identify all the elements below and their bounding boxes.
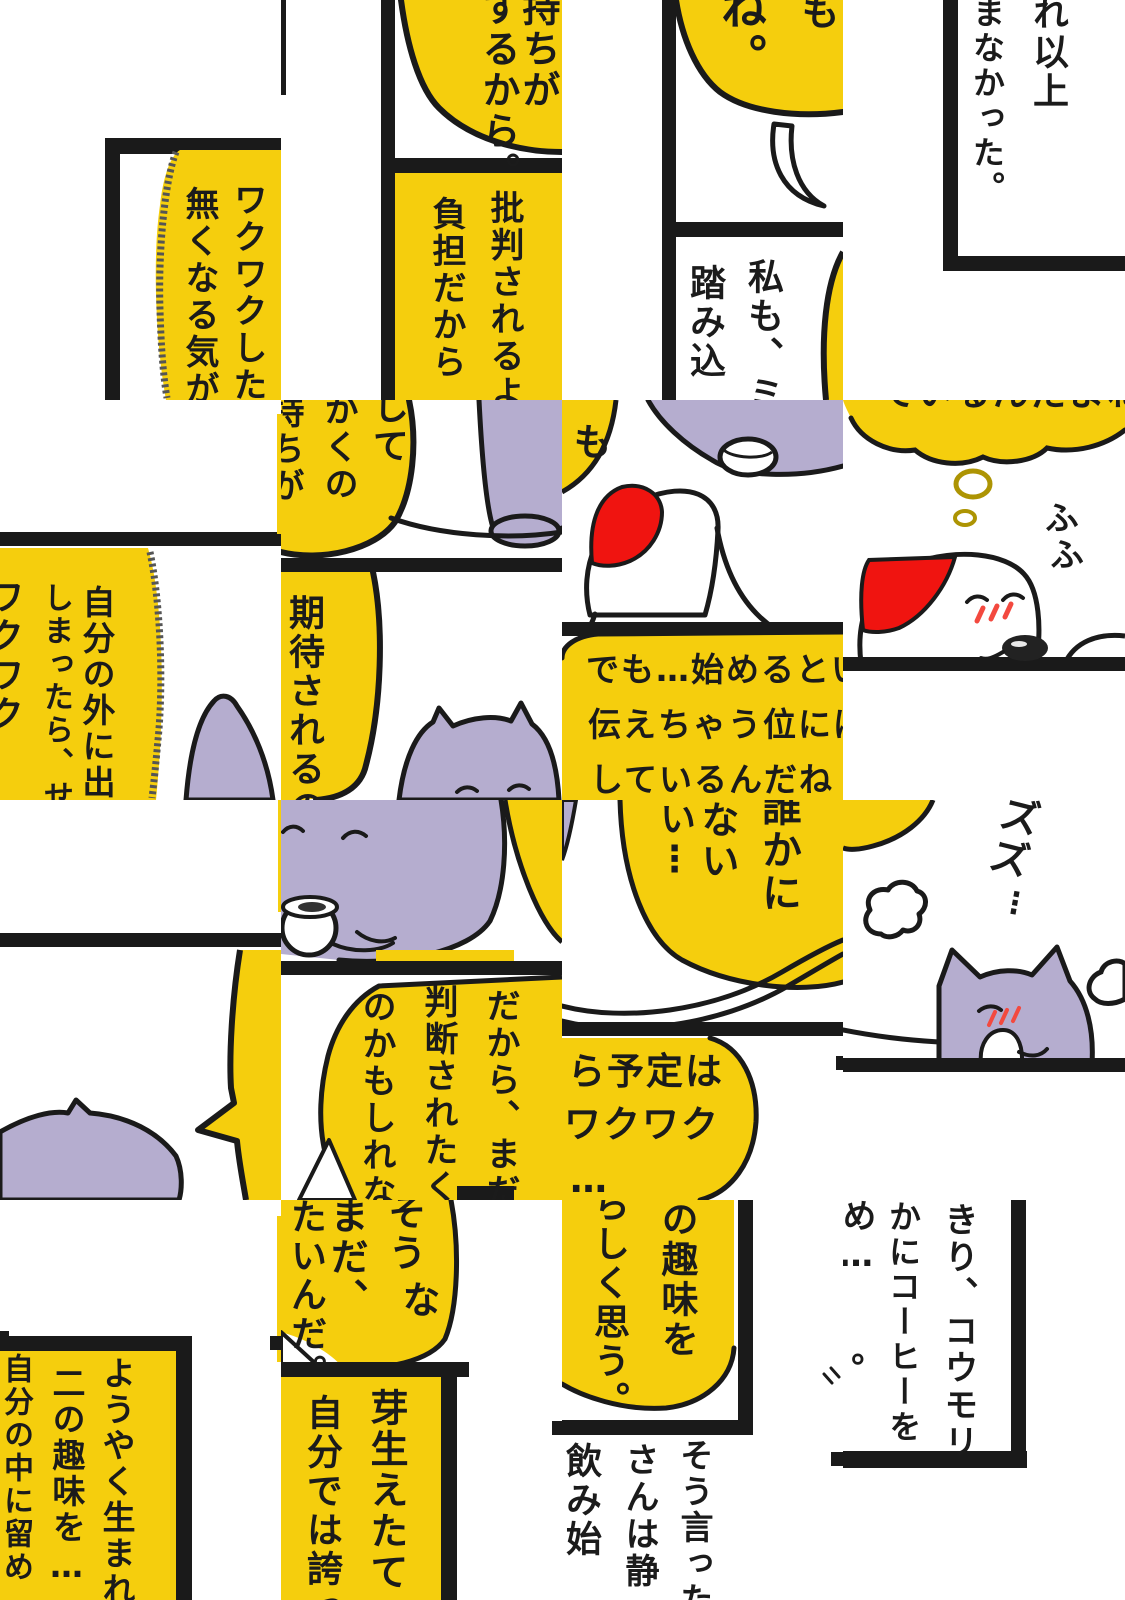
speech-text: して bbox=[369, 400, 405, 466]
narration-text: そう言った bbox=[678, 1438, 711, 1600]
speech-text: … bbox=[570, 1160, 609, 1200]
narration-text: 私も、ミ bbox=[744, 258, 780, 400]
speech-text: 無くなる気が bbox=[182, 186, 216, 400]
tile-r0c0: ワクワクした 無くなる気が bbox=[0, 0, 281, 400]
panel-border-right bbox=[738, 1200, 753, 1434]
narration-text: まなかった。 bbox=[971, 0, 1003, 206]
panel-border-left bbox=[943, 0, 958, 270]
speech-text: まだ、 bbox=[327, 1200, 365, 1319]
speech-text: のかもしれな bbox=[359, 989, 393, 1200]
panel-border-bottom bbox=[943, 256, 1125, 271]
narration-text: かにコーヒーを bbox=[887, 1200, 919, 1445]
narration-text: 踏み込 bbox=[686, 264, 722, 381]
speech-text: ワクワク bbox=[0, 578, 20, 734]
speech-text: ね。 bbox=[718, 0, 764, 82]
speech-text: だから、まだ誰 bbox=[483, 988, 517, 1200]
speech-text: かくの bbox=[321, 400, 355, 503]
panel-border-mid bbox=[562, 1022, 843, 1036]
cat-head bbox=[399, 703, 559, 800]
speech-text: たいんだ。 bbox=[287, 1200, 323, 1393]
tile-r3c1: そう な まだ、 たいんだ。 芽生えたて 自分では誇っ bbox=[281, 1200, 562, 1600]
border-fragment bbox=[836, 1056, 843, 1070]
panel-border-left bbox=[662, 0, 676, 400]
table-edge bbox=[843, 1030, 939, 1042]
thought-circle bbox=[956, 471, 990, 497]
panel-art bbox=[0, 800, 281, 1200]
border-fragment bbox=[270, 1336, 281, 1350]
coffee-cup-dark bbox=[1002, 635, 1048, 661]
narration-text: め… bbox=[843, 1200, 873, 1278]
caption-text: 批判されるよ bbox=[487, 190, 521, 400]
caption-text: 芽生えたて bbox=[367, 1388, 405, 1593]
text-fragment: 。 bbox=[843, 1352, 861, 1389]
panel-border-top bbox=[0, 532, 281, 546]
panel-border-top bbox=[0, 933, 281, 947]
box-border-right bbox=[176, 1336, 192, 1600]
narration-text: 飲み始 bbox=[562, 1442, 598, 1559]
tile-r0c3: れ以上 まなかった。 bbox=[843, 0, 1125, 400]
tile-r0c1: 持ちが するから。 批判されるよ 負担だから bbox=[281, 0, 562, 400]
tile-r3c3: きり、コウモリ かにコーヒーを め… 。 bbox=[843, 1200, 1125, 1600]
bubble-corner bbox=[505, 800, 562, 942]
speech-text: 持ちが bbox=[519, 0, 557, 111]
speech-text: 伝えちゃう位には bbox=[588, 707, 843, 743]
narration-text: さんは静 bbox=[622, 1442, 656, 1590]
sfx-text: ふふ bbox=[1038, 498, 1082, 576]
caption-text: 自分の中に留め bbox=[0, 1353, 30, 1584]
speech-text: ワクワクした bbox=[230, 182, 264, 400]
tile-r3c0: ようやく生まれ 二の趣味を… 自分の中に留め bbox=[0, 1200, 281, 1600]
caption-box bbox=[395, 173, 562, 400]
speech-text: 判断されたく bbox=[421, 984, 455, 1200]
bubble-tail bbox=[773, 124, 824, 206]
panel-border-right bbox=[1011, 1200, 1026, 1464]
speech-text: らしく思う。 bbox=[590, 1200, 626, 1420]
caption-text: ようやく生まれ bbox=[100, 1356, 133, 1600]
steam-puff bbox=[1089, 961, 1125, 1004]
tile-r0c2: ね。 も 私も、ミ 踏み込 bbox=[562, 0, 843, 400]
tile-r3c2: の趣味を らしく思う。 そう言った さんは静 飲み始 bbox=[562, 1200, 843, 1600]
panel-art bbox=[843, 400, 1125, 800]
panel-border-mid bbox=[662, 222, 843, 237]
speech-text: でも…始めるとい bbox=[586, 652, 843, 688]
tile-r2c0 bbox=[0, 800, 281, 1200]
panel-art bbox=[0, 1200, 281, 1600]
cup-glint bbox=[1011, 641, 1027, 647]
thought-circle bbox=[955, 511, 975, 525]
comic-page: ワクワクした 無くなる気が 持ちが するから。 批判されるよ 負担だから ね。 … bbox=[0, 0, 1125, 1600]
speech-text: そう bbox=[385, 1200, 423, 1274]
cat-paw bbox=[491, 516, 559, 546]
border-fragment bbox=[831, 1452, 843, 1466]
panel-border-mid bbox=[281, 961, 562, 975]
box-border-right bbox=[441, 1368, 457, 1600]
narration-text: れ以上 bbox=[1029, 0, 1065, 111]
speech-text: 持ちが bbox=[281, 400, 301, 505]
panel-border-mid bbox=[381, 158, 562, 173]
steam-puff bbox=[866, 882, 926, 937]
cup-opening bbox=[298, 902, 326, 912]
speech-text: も bbox=[798, 0, 836, 33]
panel-border-mid bbox=[281, 558, 562, 572]
speech-text: 自分の外に出 bbox=[80, 585, 113, 800]
tile-r2c2: 誰かに ない い⋮ ら予定は ワクワク … bbox=[562, 800, 843, 1200]
speech-text: しているんだね bbox=[590, 762, 834, 798]
box-border-top bbox=[0, 1336, 190, 1351]
border-fragment bbox=[552, 1421, 562, 1435]
thought-text-clipped: ているんだよね bbox=[879, 400, 1125, 414]
panel-border-bottom bbox=[843, 1058, 1125, 1072]
speech-text: しまったら、せ bbox=[40, 582, 70, 800]
speech-text: 期待されるの bbox=[285, 594, 321, 800]
border-fragment bbox=[0, 1331, 9, 1350]
cat-fragment bbox=[562, 800, 576, 860]
tile-r1c1: して かくの 持ちが 期待されるの bbox=[281, 400, 562, 800]
speech-text: ら予定は bbox=[568, 1052, 724, 1093]
panel-border-mid bbox=[562, 1420, 753, 1435]
tile-r1c0: 自分の外に出 しまったら、せ ワクワク bbox=[0, 400, 281, 800]
speech-text: の趣味を bbox=[658, 1200, 695, 1360]
tile-r1c3: ているんだよね ふふ bbox=[843, 400, 1125, 800]
speech-text: も bbox=[570, 422, 608, 463]
caption-text: 二の趣味を… bbox=[50, 1366, 83, 1588]
panel-border-left bbox=[381, 0, 395, 400]
narration-text: きり、コウモリ bbox=[941, 1202, 975, 1461]
stroke-fragment bbox=[824, 1368, 839, 1383]
speech-text: ない bbox=[698, 800, 736, 882]
tile-r2c1: だから、まだ誰 判断されたく のかもしれな bbox=[281, 800, 562, 1200]
line-fragment bbox=[281, 0, 286, 95]
speech-text: するから。 bbox=[479, 0, 517, 193]
panel-border-left bbox=[105, 138, 120, 400]
tile-r2c3: ズズ ⋮ bbox=[843, 800, 1125, 1200]
tile-r1c2: も でも…始めるとい 伝えちゃう位には しているんだね bbox=[562, 400, 843, 800]
cat-ear bbox=[186, 696, 273, 800]
panel-border-bottom bbox=[843, 1451, 1027, 1468]
cat-back bbox=[0, 1100, 181, 1200]
speech-text: い⋮ bbox=[656, 800, 692, 883]
caption-text: 自分では誇っ bbox=[303, 1394, 339, 1600]
speech-text: ワクワク bbox=[564, 1105, 720, 1146]
speech-text: 誰かに bbox=[758, 800, 798, 915]
sfx-text: ⋮ bbox=[996, 884, 1032, 927]
speech-text: な bbox=[399, 1280, 437, 1321]
caption-text: 負担だから bbox=[429, 196, 463, 381]
